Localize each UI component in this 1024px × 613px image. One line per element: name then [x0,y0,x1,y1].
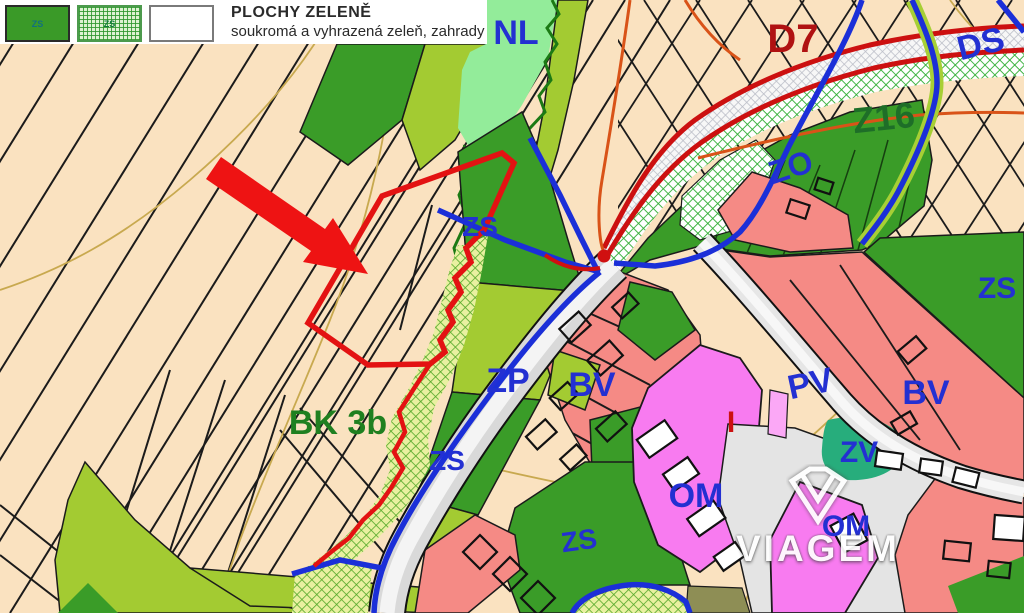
legend-swatch-label: ZS [104,19,116,29]
zone-label-zs-top: ZS [462,211,498,242]
zone-pink-patch [768,390,788,438]
legend-swatch-empty [149,5,214,42]
zone-label-i: I [727,406,735,439]
zone-label-nl: NL [493,14,538,52]
legend-subtitle: soukromá a vyhrazená zeleň, zahrady [231,23,484,42]
map-canvas: NL D7 DS Z16 ZO ZS ZP ZS BK 3b BV PV BV … [0,0,1024,613]
legend-text: PLOCHY ZELENĚ soukromá a vyhrazená zeleň… [231,3,484,42]
zoning-map-screenshot: NL D7 DS Z16 ZO ZS ZP ZS BK 3b BV PV BV … [0,0,1024,613]
zone-label-om2: OM [822,510,870,543]
legend-swatch-label: ZS [32,19,44,29]
zone-label-bv-right: BV [902,374,950,412]
zone-label-bk3b: BK 3b [289,404,387,442]
legend-swatch-hatched-green: ZS [77,5,142,42]
zone-label-om: OM [669,477,724,515]
zone-label-d7: D7 [767,17,818,61]
zone-label-zs-bottom: ZS [559,523,599,559]
zone-label-zv: ZV [840,436,878,469]
zone-label-z16: Z16 [851,94,917,141]
zone-label-zp: ZP [486,362,529,400]
zone-label-bv-center: BV [568,366,616,404]
zone-label-zs-right: ZS [978,272,1016,305]
zone-olive-patch [686,586,750,613]
legend-swatch-solid-green: ZS [5,5,70,42]
legend-title: PLOCHY ZELENĚ [231,3,484,23]
zone-label-zs-mid: ZS [429,445,465,476]
map-legend: ZS ZS PLOCHY ZELENĚ soukromá a vyhrazená… [0,0,487,44]
junction-dot [598,250,611,263]
